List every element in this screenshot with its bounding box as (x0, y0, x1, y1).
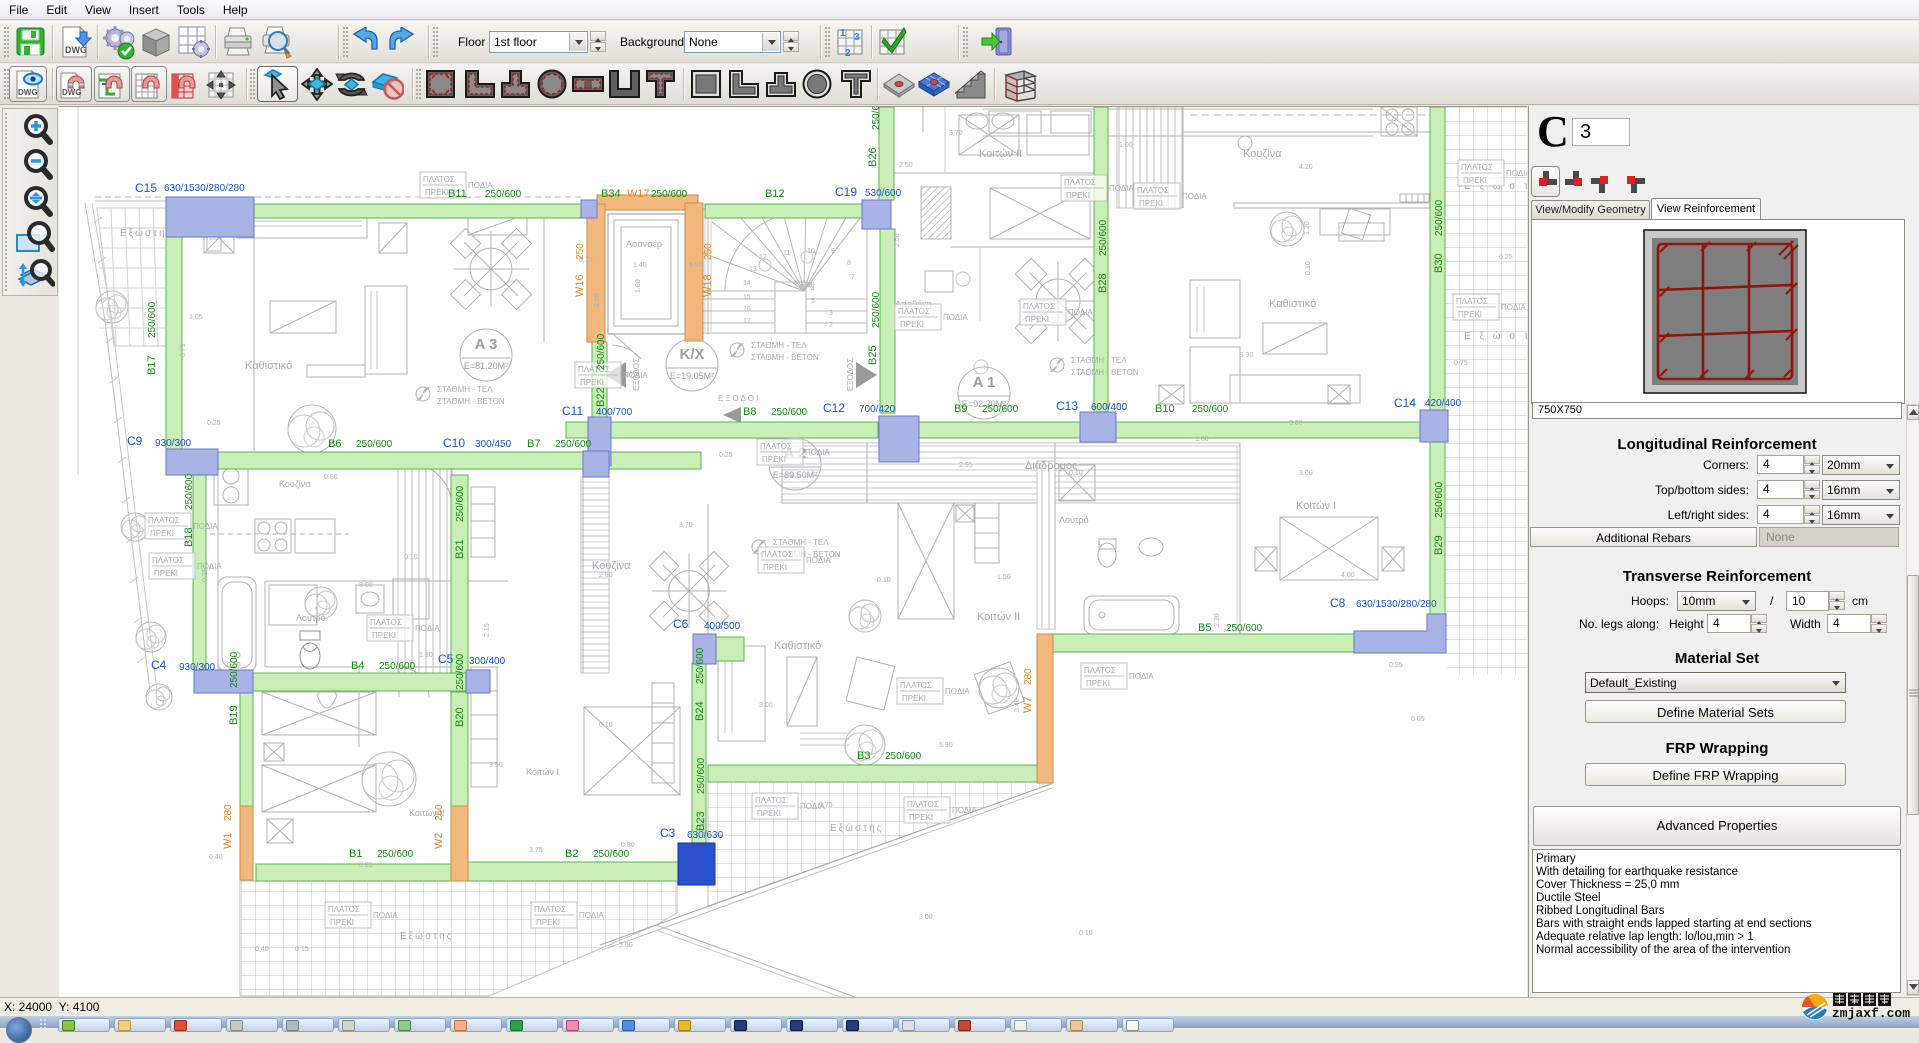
svg-text:B22: B22 (595, 387, 607, 407)
svg-text:3.70: 3.70 (949, 130, 963, 137)
svg-text:ΠΡΕΚΙ: ΠΡΕΚΙ (757, 809, 781, 818)
svg-text:4.00: 4.00 (1341, 572, 1355, 579)
svg-text:3 00: 3 00 (799, 282, 813, 289)
svg-text:ΠΛΑΤΟΣ: ΠΛΑΤΟΣ (148, 516, 180, 525)
svg-text:DWG: DWG (62, 88, 82, 97)
svg-text:B5: B5 (1198, 622, 1211, 634)
svg-text:ΠΟΔΙΑ: ΠΟΔΙΑ (945, 687, 970, 696)
svg-text:ΠΟΔΙΑ: ΠΟΔΙΑ (943, 313, 968, 322)
svg-text:ΠΛΑΤΟΣ: ΠΛΑΤΟΣ (1084, 666, 1116, 675)
svg-text:1.20: 1.20 (619, 372, 633, 379)
svg-text:250/600: 250/600 (596, 333, 607, 370)
svg-text:E=89.50M²: E=89.50M² (773, 470, 817, 480)
svg-text:B12: B12 (765, 188, 785, 200)
svg-text:250/600: 250/600 (455, 653, 466, 690)
svg-text:Καθιστικό: Καθιστικό (1269, 298, 1316, 310)
svg-text:B9: B9 (954, 403, 967, 415)
svg-text:630/1530/280/280: 630/1530/280/280 (164, 183, 245, 194)
svg-text:2.50: 2.50 (899, 162, 913, 169)
svg-text:250: 250 (575, 243, 586, 260)
svg-text:W18: W18 (702, 274, 714, 297)
svg-text:B4: B4 (351, 660, 364, 672)
svg-text:ΣΤΑΘΜΗ - ΤΕΛ: ΣΤΑΘΜΗ - ΤΕΛ (1071, 356, 1127, 365)
svg-text:2: 2 (829, 322, 833, 329)
svg-text:ΣΤΑΘΜΗ - ΤΕΛ: ΣΤΑΘΜΗ - ΤΕΛ (773, 538, 829, 547)
svg-text:250/600: 250/600 (1098, 219, 1109, 256)
svg-text:ΠΛΑΤΟΣ: ΠΛΑΤΟΣ (907, 800, 939, 809)
svg-text:250/600: 250/600 (871, 291, 882, 328)
svg-text:ΠΟΔΙΑ: ΠΟΔΙΑ (193, 522, 218, 531)
svg-text:0.10: 0.10 (1069, 470, 1083, 477)
svg-text:0.10: 0.10 (877, 577, 891, 584)
svg-text:9: 9 (831, 248, 835, 255)
svg-text:1.20: 1.20 (1304, 221, 1311, 235)
svg-text:A 3: A 3 (475, 336, 498, 353)
svg-text:C14: C14 (1394, 396, 1416, 410)
svg-text:E=81.20M²: E=81.20M² (464, 361, 508, 371)
svg-text:C13: C13 (1056, 399, 1078, 413)
svg-text:0.05: 0.05 (1411, 716, 1425, 723)
svg-text:ΠΡΕΚΙ: ΠΡΕΚΙ (580, 378, 604, 387)
svg-text:300/400: 300/400 (469, 656, 506, 667)
svg-text:ΠΡΕΚΙ: ΠΡΕΚΙ (1025, 315, 1049, 324)
svg-text:ΠΟΔΙΑ: ΠΟΔΙΑ (1129, 672, 1154, 681)
svg-text:B28: B28 (1097, 273, 1109, 293)
svg-text:B2: B2 (565, 848, 578, 860)
svg-text:Λουτρό: Λουτρό (1059, 515, 1089, 525)
svg-text:Καθιστικό: Καθιστικό (774, 640, 821, 652)
svg-text:ΠΛΑΤΟΣ: ΠΛΑΤΟΣ (1023, 302, 1055, 311)
svg-text:S 30: S 30 (1239, 352, 1254, 359)
svg-text:C9: C9 (127, 434, 143, 448)
svg-text:ΠΡΕΚΙ: ΠΡΕΚΙ (536, 918, 560, 927)
svg-text:250/600: 250/600 (1226, 623, 1263, 634)
svg-text:B20: B20 (454, 707, 466, 727)
svg-text:250/600: 250/600 (229, 651, 240, 688)
svg-text:250/600: 250/600 (379, 661, 416, 672)
svg-text:0.75: 0.75 (819, 802, 833, 809)
svg-text:ΠΟΔΙΑ: ΠΟΔΙΑ (415, 624, 440, 633)
svg-text:530/600: 530/600 (865, 188, 902, 199)
svg-text:ΠΟΔΙΑ: ΠΟΔΙΑ (373, 911, 398, 920)
svg-text:0.75: 0.75 (1454, 360, 1468, 367)
svg-text:0.25: 0.25 (202, 568, 209, 582)
svg-text:ΠΡΕΚΙ: ΠΡΕΚΙ (1463, 176, 1487, 185)
svg-text:630/1530/280/280: 630/1530/280/280 (1356, 599, 1437, 610)
svg-text:250/600: 250/600 (593, 849, 630, 860)
svg-text:C10: C10 (443, 436, 465, 450)
svg-text:Εξώστης: Εξώστης (120, 227, 173, 239)
svg-text:1: 1 (840, 28, 846, 39)
svg-text:300/450: 300/450 (475, 439, 512, 450)
svg-text:Κοιτών ΙΙ: Κοιτών ΙΙ (977, 611, 1020, 623)
svg-text:ΠΟΔΙΑ: ΠΟΔΙΑ (197, 562, 222, 571)
svg-text:ΠΡΕΚΙ: ΠΡΕΚΙ (762, 455, 786, 464)
svg-text:4.20: 4.20 (1299, 164, 1313, 171)
svg-text:5: 5 (811, 298, 815, 305)
svg-text:700/420: 700/420 (859, 404, 896, 415)
svg-text:ΠΡΕΚΙ: ΠΡΕΚΙ (425, 188, 449, 197)
svg-text:B10: B10 (1155, 403, 1175, 415)
svg-text:ΠΟΔΙΑ: ΠΟΔΙΑ (805, 448, 830, 457)
svg-text:0.80: 0.80 (324, 474, 338, 481)
svg-text:B18: B18 (183, 527, 195, 547)
svg-text:630/630: 630/630 (687, 830, 724, 841)
svg-text:B3: B3 (857, 750, 870, 762)
svg-text:Κουζίνα: Κουζίνα (592, 560, 631, 572)
svg-text:Κοιτών Ι: Κοιτών Ι (526, 767, 559, 777)
svg-text:Κοιτών ΙΙ: Κοιτών ΙΙ (979, 148, 1022, 160)
svg-text:C5: C5 (438, 652, 454, 666)
svg-text:C11: C11 (562, 404, 583, 418)
svg-text:ΠΡΕΚΙ: ΠΡΕΚΙ (330, 918, 354, 927)
svg-text:250/600: 250/600 (1434, 481, 1445, 518)
svg-text:Κοιτών Ι: Κοιτών Ι (1296, 500, 1336, 512)
svg-text:3.70: 3.70 (679, 522, 693, 529)
svg-text:ΠΟΔΙΑ: ΠΟΔΙΑ (579, 911, 604, 920)
svg-text:250/600: 250/600 (1192, 404, 1229, 415)
svg-text:11: 11 (783, 250, 790, 257)
svg-text:B29: B29 (1433, 535, 1445, 555)
svg-text:ΠΛΑΤΟΣ: ΠΛΑΤΟΣ (1064, 178, 1096, 187)
svg-text:14: 14 (743, 280, 751, 287)
svg-text:ΠΛΑΤΟΣ: ΠΛΑΤΟΣ (152, 556, 184, 565)
svg-text:ΠΟΔΙΑ: ΠΟΔΙΑ (1182, 192, 1207, 201)
svg-text:ΠΡΕΚΙ: ΠΡΕΚΙ (900, 320, 924, 329)
svg-text:C19: C19 (835, 185, 857, 199)
svg-text:400/700: 400/700 (596, 407, 633, 418)
svg-text:13: 13 (749, 266, 757, 273)
svg-text:Ασανσέρ: Ασανσέρ (626, 239, 662, 249)
svg-text:Κουζίνα: Κουζίνα (1243, 148, 1282, 160)
svg-text:ΠΛΑΤΟΣ: ΠΛΑΤΟΣ (900, 681, 932, 690)
svg-text:3.00: 3.00 (759, 702, 773, 709)
svg-text:B21: B21 (454, 539, 466, 559)
svg-text:ΠΛΑΤΟΣ: ΠΛΑΤΟΣ (328, 905, 360, 914)
svg-text:250/600: 250/600 (982, 404, 1019, 415)
svg-text:2: 2 (845, 48, 851, 58)
svg-text:ΠΡΕΚΙ: ΠΡΕΚΙ (1139, 199, 1163, 208)
svg-text:Εξώστης: Εξώστης (830, 822, 883, 834)
svg-text:B19: B19 (228, 705, 240, 725)
svg-text:B25: B25 (867, 345, 879, 365)
svg-text:ΠΟΔΙΑ: ΠΟΔΙΑ (806, 556, 831, 565)
svg-text:C12: C12 (823, 401, 845, 415)
svg-text:3.00: 3.00 (1289, 420, 1303, 427)
svg-text:ΠΡΕΚΙ: ΠΡΕΚΙ (909, 813, 933, 822)
svg-text:ΠΡΕΚΙ: ΠΡΕΚΙ (763, 563, 787, 572)
svg-text:ΠΟΔΙΑ: ΠΟΔΙΑ (1506, 169, 1527, 178)
svg-text:400/500: 400/500 (704, 621, 741, 632)
svg-text:ΠΛΑΤΟΣ: ΠΛΑΤΟΣ (1461, 163, 1493, 172)
svg-text:B24: B24 (694, 701, 706, 721)
svg-text:280: 280 (1023, 668, 1034, 685)
svg-text:B26: B26 (867, 147, 879, 167)
svg-text:600/400: 600/400 (1091, 402, 1128, 413)
svg-text:0.90: 0.90 (621, 842, 635, 849)
svg-text:0.25: 0.25 (207, 420, 221, 427)
svg-text:250/600: 250/600 (696, 757, 707, 794)
svg-text:250/600: 250/600 (485, 189, 522, 200)
svg-text:6 90: 6 90 (689, 262, 703, 269)
svg-text:3.75: 3.75 (529, 847, 543, 854)
svg-text:ΕΞΟΔΟΣ: ΕΞΟΔΟΣ (846, 358, 855, 391)
svg-text:1.00: 1.00 (1119, 142, 1133, 149)
svg-text:ΠΡΕΚΙ: ΠΡΕΚΙ (1066, 191, 1090, 200)
svg-text:W7: W7 (1022, 697, 1034, 714)
svg-text:W16: W16 (574, 274, 586, 297)
svg-text:B7: B7 (527, 438, 540, 450)
svg-text:3.00: 3.00 (359, 582, 373, 589)
svg-text:0.10: 0.10 (599, 722, 613, 729)
svg-text:ΠΡΕΚΙ: ΠΡΕΚΙ (902, 694, 926, 703)
svg-text:Λουτρό: Λουτρό (296, 613, 326, 623)
svg-text:250/600: 250/600 (555, 439, 592, 450)
svg-text:W17: W17 (627, 188, 650, 200)
svg-text:16: 16 (743, 306, 751, 313)
svg-text:1.40: 1.40 (633, 262, 647, 269)
svg-text:1.00: 1.00 (1195, 436, 1209, 443)
svg-text:0.15: 0.15 (295, 946, 309, 953)
svg-text:0.10: 0.10 (1305, 261, 1312, 275)
svg-text:ΠΟΔΙΑ: ΠΟΔΙΑ (952, 806, 977, 815)
svg-text:250/600: 250/600 (771, 407, 808, 418)
svg-text:250/600: 250/600 (377, 849, 414, 860)
svg-text:ΠΡΕΚΙ: ΠΡΕΚΙ (1458, 310, 1482, 319)
svg-text:5.90: 5.90 (939, 742, 953, 749)
svg-text:C8: C8 (1330, 596, 1346, 610)
svg-text:930/300: 930/300 (179, 662, 216, 673)
svg-text:Κουζίνα: Κουζίνα (279, 479, 311, 489)
svg-text:3: 3 (829, 310, 833, 317)
svg-text:0.25: 0.25 (1499, 254, 1513, 261)
svg-text:0.79: 0.79 (180, 343, 187, 357)
svg-text:B30: B30 (1433, 253, 1445, 273)
svg-text:250/600: 250/600 (147, 301, 158, 338)
svg-text:A 1: A 1 (973, 374, 996, 391)
svg-text:8: 8 (847, 260, 851, 267)
svg-text:250/600: 250/600 (871, 107, 882, 130)
svg-text:C6: C6 (673, 617, 689, 631)
svg-text:ΠΡΕΚΙ: ΠΡΕΚΙ (372, 631, 396, 640)
svg-text:3.50: 3.50 (489, 762, 503, 769)
svg-text:ΠΟΔΙΑ: ΠΟΔΙΑ (1109, 184, 1134, 193)
svg-text:1.80: 1.80 (635, 279, 642, 293)
svg-text:ΠΛΑΤΟΣ: ΠΛΑΤΟΣ (760, 442, 792, 451)
svg-text:2.80: 2.80 (599, 572, 613, 579)
svg-text:ΠΡΕΚΙ: ΠΡΕΚΙ (150, 529, 174, 538)
svg-text:930/300: 930/300 (155, 438, 192, 449)
svg-text:ΠΛΑΤΟΣ: ΠΛΑΤΟΣ (1137, 186, 1169, 195)
svg-text:ΠΛΑΤΟΣ: ΠΛΑΤΟΣ (423, 175, 455, 184)
svg-text:zmjaxf.com: zmjaxf.com (1832, 1006, 1910, 1021)
svg-text:ΣΤΑΘΜΗ - ΤΕΛ: ΣΤΑΘΜΗ - ΤΕΛ (437, 385, 493, 394)
svg-text:0.10: 0.10 (404, 554, 418, 561)
svg-text:C15: C15 (135, 181, 157, 195)
svg-text:ΠΛΑΤΟΣ: ΠΛΑΤΟΣ (898, 307, 930, 316)
svg-text:2.30: 2.30 (1214, 613, 1221, 627)
svg-text:280: 280 (223, 804, 234, 821)
svg-text:B23: B23 (695, 811, 707, 831)
svg-text:ΠΛΑΤΟΣ: ΠΛΑΤΟΣ (370, 618, 402, 627)
svg-text:3: 3 (854, 32, 860, 43)
svg-text:0.40: 0.40 (255, 946, 269, 953)
svg-text:250/600: 250/600 (885, 751, 922, 762)
svg-text:2.50: 2.50 (894, 233, 901, 247)
svg-text:5.50: 5.50 (619, 942, 633, 949)
svg-text:B1: B1 (349, 848, 362, 860)
svg-text:1.05: 1.05 (189, 314, 203, 321)
svg-text:2.95: 2.95 (959, 462, 973, 469)
svg-text:7: 7 (851, 274, 855, 281)
svg-text:1.50: 1.50 (997, 574, 1011, 581)
svg-text:ΠΡΕΚΙ: ΠΡΕΚΙ (154, 569, 178, 578)
svg-text:B11: B11 (448, 188, 467, 200)
svg-text:2.50: 2.50 (594, 293, 601, 307)
svg-text:Καθιστικό: Καθιστικό (245, 360, 292, 372)
svg-text:3.00: 3.00 (1299, 470, 1313, 477)
svg-text:ΕΞΟΔΟΙ: ΕΞΟΔΟΙ (718, 394, 760, 403)
svg-text:260: 260 (434, 804, 445, 821)
svg-text:250/600: 250/600 (455, 485, 466, 522)
svg-text:ΠΡΕΚΙ: ΠΡΕΚΙ (1086, 679, 1110, 688)
svg-text:0.10: 0.10 (1079, 930, 1093, 937)
svg-text:ΠΛΑΤΟΣ: ΠΛΑΤΟΣ (755, 796, 787, 805)
svg-text:250/600: 250/600 (695, 647, 706, 684)
svg-text:3.40: 3.40 (1014, 698, 1021, 712)
svg-text:420/400: 420/400 (1425, 398, 1462, 409)
svg-text:ΠΟΔΙΑ: ΠΟΔΙΑ (1501, 303, 1526, 312)
svg-text:2.15: 2.15 (484, 623, 491, 637)
svg-text:ΠΟΔΙΑ: ΠΟΔΙΑ (1068, 308, 1093, 317)
svg-text:1.90: 1.90 (419, 652, 433, 659)
svg-text:15: 15 (743, 294, 751, 301)
svg-text:W2: W2 (433, 833, 445, 850)
svg-text:C4: C4 (151, 658, 167, 672)
svg-text:B6: B6 (328, 438, 341, 450)
svg-text:ΣΤΑΘΜΗ - ΒΕΤΟΝ: ΣΤΑΘΜΗ - ΒΕΤΟΝ (437, 397, 505, 406)
svg-text:ΣΤΑΘΜΗ - ΤΕΛ: ΣΤΑΘΜΗ - ΤΕΛ (751, 341, 807, 350)
svg-text:ΠΛΑΤΟΣ: ΠΛΑΤΟΣ (1456, 297, 1488, 306)
svg-text:DWG: DWG (18, 88, 38, 97)
svg-text:250/600: 250/600 (1434, 199, 1445, 236)
svg-text:Ε ξ ώ σ τ: Ε ξ ώ σ τ (1464, 330, 1527, 342)
svg-text:0.95: 0.95 (1389, 662, 1403, 669)
svg-text:W1: W1 (222, 833, 234, 850)
svg-text:250/600: 250/600 (356, 439, 393, 450)
svg-text:ΣΤΑΘΜΗ - ΒΕΤΟΝ: ΣΤΑΘΜΗ - ΒΕΤΟΝ (1071, 368, 1139, 377)
svg-text:250: 250 (703, 243, 714, 260)
svg-text:17: 17 (743, 318, 751, 325)
svg-text:0.25: 0.25 (719, 452, 733, 459)
svg-text:3.00: 3.00 (919, 914, 933, 921)
svg-text:250/600: 250/600 (184, 473, 195, 510)
svg-text:250/600: 250/600 (651, 189, 688, 200)
svg-text:C3: C3 (660, 826, 676, 840)
svg-text:ΣΤΑΘΜΗ - ΒΕΤΟΝ: ΣΤΑΘΜΗ - ΒΕΤΟΝ (751, 353, 819, 362)
svg-text:E=19.05M²: E=19.05M² (670, 371, 714, 381)
svg-text:0.25: 0.25 (359, 862, 373, 869)
svg-text:ΠΛΑΤΟΣ: ΠΛΑΤΟΣ (761, 550, 793, 559)
svg-text:K/X: K/X (679, 346, 704, 363)
svg-text:0.40: 0.40 (209, 854, 223, 861)
svg-text:B17: B17 (146, 355, 158, 375)
svg-text:ΠΛΑΤΟΣ: ΠΛΑΤΟΣ (534, 905, 566, 914)
svg-text:B34: B34 (601, 188, 621, 200)
svg-text:12: 12 (759, 254, 767, 261)
svg-text:Εξώστης: Εξώστης (400, 930, 453, 942)
svg-text:B8: B8 (743, 406, 756, 418)
